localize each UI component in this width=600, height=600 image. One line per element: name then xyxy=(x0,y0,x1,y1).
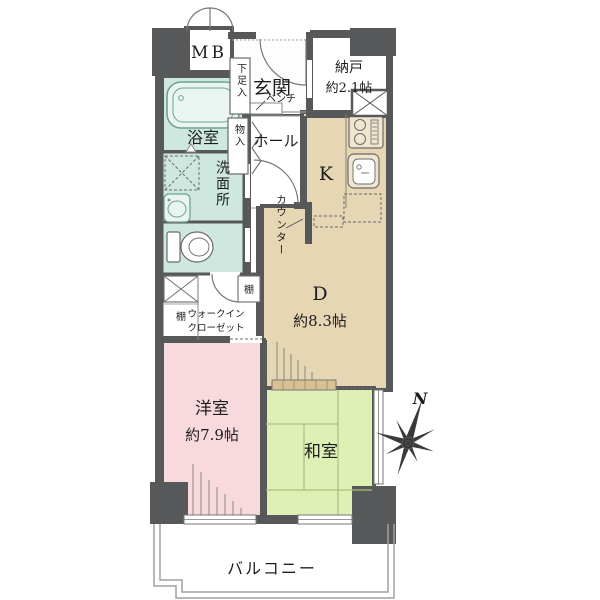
floor-plan: MB 玄関 下足入 ベンチ 納戸 約2.1帖 浴室 物入 ホール 洗面所 K カ… xyxy=(0,0,600,600)
label-shoe-cabinet: 下足入 xyxy=(235,63,247,99)
opening-entrance xyxy=(256,30,306,40)
label-balcony: バルコニー xyxy=(227,559,317,578)
label-mb: MB xyxy=(191,43,227,63)
label-western-size: 約7.9帖 xyxy=(185,426,239,444)
opening-toilet xyxy=(245,228,250,262)
wall-nando-top xyxy=(310,30,390,37)
label-washroom: 洗面所 xyxy=(214,160,230,208)
wall-mb-bottom xyxy=(156,70,236,77)
kitchen-sink-icon xyxy=(348,154,379,188)
label-wic-line2: クローゼット xyxy=(187,322,244,334)
label-bench: ベンチ xyxy=(266,93,296,105)
washbasin-icon xyxy=(164,194,190,222)
label-nando: 納戸 xyxy=(335,60,363,76)
label-hall: ホール xyxy=(253,132,298,150)
floor-plan-svg: MB 玄関 下足入 ベンチ 納戸 約2.1帖 浴室 物入 ホール 洗面所 K カ… xyxy=(0,0,600,600)
label-monoire: 物入 xyxy=(233,123,245,148)
label-wic-line1: ウォークイン xyxy=(187,309,244,320)
label-western: 洋室 xyxy=(195,399,229,419)
label-counter: カウンター xyxy=(275,194,287,257)
label-dining: D xyxy=(312,283,327,305)
label-kitchen: K xyxy=(319,163,334,185)
toilet-icon xyxy=(167,232,213,262)
label-nando-size: 約2.1帖 xyxy=(326,81,373,96)
wall-left xyxy=(155,72,162,486)
label-washitsu: 和室 xyxy=(304,442,338,462)
label-shelf-left: 棚 xyxy=(176,310,186,323)
wall-hall-kitchen xyxy=(300,116,307,204)
wall-western-washitsu xyxy=(260,340,267,520)
wall-counter-v xyxy=(305,202,312,244)
pillar-top-left xyxy=(152,28,190,76)
opening-wic xyxy=(210,272,240,276)
label-bathroom: 浴室 xyxy=(187,128,219,147)
label-shelf-right: 棚 xyxy=(244,283,254,296)
label-north: N xyxy=(412,389,429,408)
wall-wic-dining xyxy=(256,206,264,340)
label-dining-size: 約8.3帖 xyxy=(293,312,347,330)
opening-nando xyxy=(307,60,312,98)
stove-icon xyxy=(349,116,383,148)
